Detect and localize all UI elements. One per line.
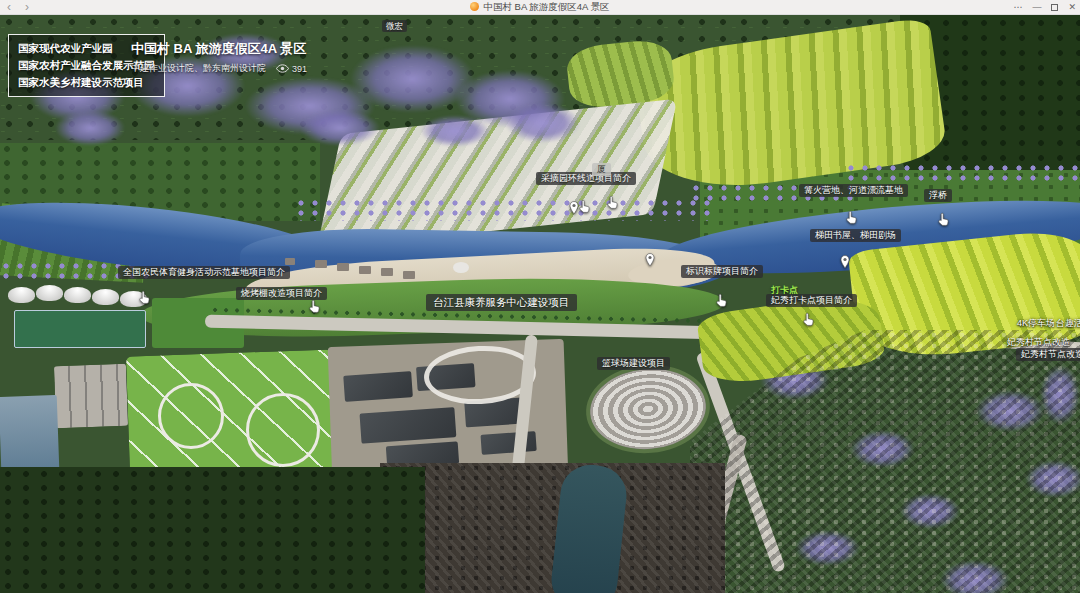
pond [0, 395, 59, 471]
purple-trees [505, 103, 580, 143]
map-toolbar [1046, 0, 1080, 593]
more-button[interactable]: ⋯ [1013, 0, 1022, 15]
purple-tree-row [295, 198, 715, 221]
app-logo-icon [470, 2, 479, 11]
map-label-biaoshi[interactable]: 标识标牌项目简介 [681, 265, 763, 278]
maximize-button[interactable] [1051, 4, 1058, 11]
garden-ring [158, 383, 224, 449]
title-bar: ‹ › 中国村 BA 旅游度假区4A 景区 ⋯ — ✕ [0, 0, 1080, 15]
map-label-gouhuo[interactable]: 篝火营地、河道漂流基地 [799, 184, 908, 197]
beach-tent [453, 262, 469, 273]
eye-icon [276, 64, 289, 73]
map-label-titian-shuwu[interactable]: 梯田书屋、梯田剧场 [810, 229, 901, 242]
building-roof [360, 407, 457, 444]
badge-line: 国家水美乡村建设示范项目 [18, 74, 155, 91]
camp-structure [403, 271, 415, 279]
map-label-quanguo[interactable]: 全国农民体育健身活动示范基地项目简介 [118, 266, 290, 279]
purple-trees [420, 115, 490, 147]
camp-structure [315, 260, 327, 268]
camp-structure [359, 266, 371, 274]
map-label-caizhaiyuan[interactable]: 采摘园环线道项目简介 [536, 172, 636, 185]
west-buildings [54, 364, 128, 428]
building-roof [343, 371, 413, 402]
canopy-tent [8, 287, 35, 303]
purple-trees [300, 110, 380, 146]
hand-cursor-icon[interactable] [308, 299, 321, 318]
designer-subtitle: 中建作业设计院、黔东南州设计院 [131, 62, 266, 75]
map-pin-icon[interactable] [569, 201, 579, 219]
garden-ring [246, 393, 320, 467]
window-title: 中国村 BA 旅游度假区4A 景区 [0, 1, 1080, 14]
purple-tree-row [845, 163, 1080, 183]
map-pin-icon[interactable] [645, 253, 655, 271]
sports-court [14, 310, 146, 348]
map-label-weihong[interactable]: 微宏 [382, 20, 407, 32]
map-label-kangyang[interactable]: 台江县康养服务中心建设项目 [426, 294, 577, 311]
back-button[interactable]: ‹ [0, 0, 18, 15]
map-label-feixiu-daka[interactable]: 妃秀打卡点项目简介 [766, 294, 857, 307]
circular-plaza [587, 364, 710, 454]
hand-cursor-icon[interactable] [606, 195, 619, 214]
map-label-lanqiuchang[interactable]: 篮球场建设项目 [597, 357, 670, 370]
map-label-daxia[interactable]: 厦 [592, 163, 611, 176]
purple-trees [55, 110, 125, 146]
forest-southwest [0, 467, 425, 593]
camp-structure [285, 258, 295, 265]
building-roof [480, 431, 536, 455]
map-label-fuqiao[interactable]: 浮桥 [924, 189, 952, 202]
hand-cursor-icon[interactable] [138, 290, 151, 309]
page-title: 中国村 BA 旅游度假区4A 景区 [131, 40, 307, 58]
canopy-tent [36, 285, 63, 301]
hand-cursor-icon[interactable] [578, 199, 591, 218]
view-counter: 391 [276, 64, 307, 74]
forward-button[interactable]: › [18, 0, 36, 15]
hand-cursor-icon[interactable] [802, 312, 815, 331]
camp-structure [337, 263, 349, 271]
canopy-tent [92, 289, 119, 305]
camp-structure [381, 268, 393, 276]
map-pin-icon[interactable] [840, 255, 850, 273]
hand-cursor-icon[interactable] [845, 210, 858, 229]
close-button[interactable]: ✕ [1068, 0, 1076, 15]
minimize-button[interactable]: — [1032, 0, 1041, 15]
hand-cursor-icon[interactable] [937, 212, 950, 231]
canopy-tent [64, 287, 91, 303]
hand-cursor-icon[interactable] [715, 293, 728, 312]
app-window: ‹ › 中国村 BA 旅游度假区4A 景区 ⋯ — ✕ [0, 0, 1080, 593]
